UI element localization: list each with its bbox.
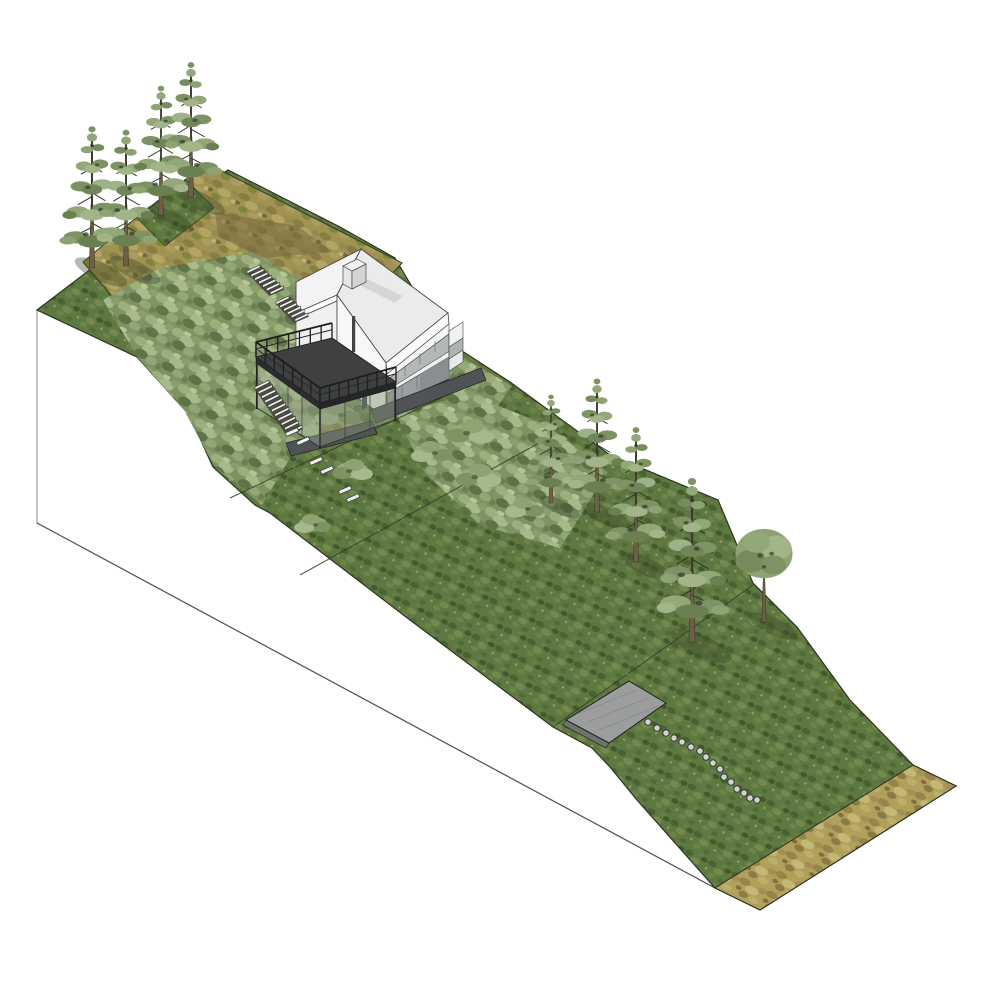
marker-dot xyxy=(663,730,669,736)
marker-dot xyxy=(728,779,734,785)
marker-dot xyxy=(645,719,651,725)
marker-dot xyxy=(703,754,709,760)
gable-window-slit xyxy=(352,316,355,352)
marker-dot xyxy=(697,748,703,754)
marker-dot xyxy=(654,725,660,731)
site-axonometric-illustration xyxy=(0,0,1000,999)
marker-dot xyxy=(747,795,753,801)
marker-dot xyxy=(741,790,747,796)
site-axonometric-figure xyxy=(0,0,1000,999)
marker-dot xyxy=(679,739,685,745)
marker-dot xyxy=(717,766,723,772)
marker-dot xyxy=(754,797,760,803)
marker-dot xyxy=(734,786,740,792)
marker-dot xyxy=(721,774,727,780)
marker-dot xyxy=(671,735,677,741)
marker-dot xyxy=(710,760,716,766)
house-ne-wing xyxy=(449,322,463,371)
marker-dot xyxy=(688,744,694,750)
